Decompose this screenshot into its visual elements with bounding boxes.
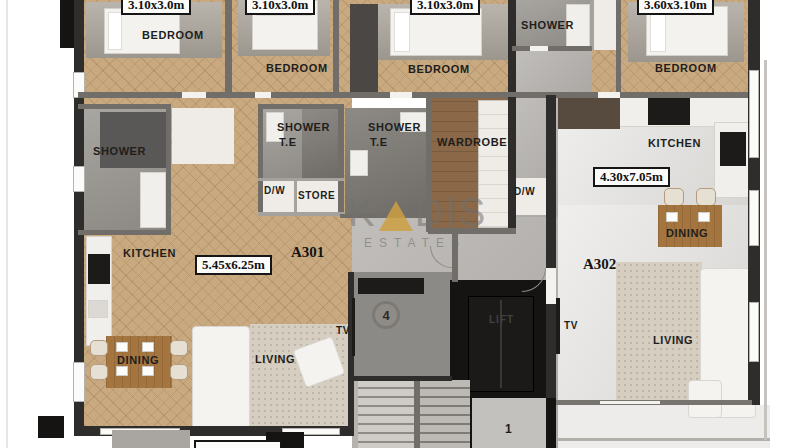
watermark-letters-dis: DIS <box>415 192 488 232</box>
wall-te1-left <box>258 104 263 214</box>
wall-store-bottom <box>258 212 344 216</box>
plate <box>698 212 710 222</box>
dining-chair <box>664 188 684 206</box>
tv-panel-a302 <box>556 298 560 354</box>
wall-store-dw <box>294 180 297 212</box>
room-label-shower-te-2: SHOWER <box>368 121 421 133</box>
window-right-2 <box>749 190 759 246</box>
room-label-bedroom-2: BEDROOM <box>266 62 328 74</box>
unit-label-a301: A301 <box>291 244 324 261</box>
sliding-door-a302 <box>600 401 660 404</box>
dimension-label-bedroom-4: 3.60x3.10m <box>637 0 714 15</box>
floor-plan: 4 LIFT 1 <box>0 0 796 448</box>
dining-chair <box>170 364 188 380</box>
pillow-3 <box>394 12 410 52</box>
balcony-rail <box>558 438 770 441</box>
room-label-living-a301: LIVING <box>255 353 295 365</box>
dining-chair <box>696 188 716 206</box>
tv-console <box>358 278 424 294</box>
wall-store-top <box>258 178 344 181</box>
room-label-bedroom-4: BEDROOM <box>655 62 717 74</box>
wall-shower-a302-bottom <box>512 46 592 51</box>
a302-closet <box>592 0 618 50</box>
wall-bed2-bed3 <box>333 0 339 97</box>
dining-chair <box>90 340 108 356</box>
room-label-wardrobe: WARDROBE <box>437 136 507 148</box>
dimension-label-bedroom-3: 3.10x3.0m <box>410 0 480 15</box>
label-tv-a302: TV <box>564 320 578 331</box>
corridor-top-floor <box>512 50 592 97</box>
kitchen-a301-stove <box>88 254 110 284</box>
wall-te1-top <box>258 104 344 109</box>
plate <box>142 342 154 352</box>
wall-te1-te2 <box>338 104 344 216</box>
pillow-1 <box>108 12 122 50</box>
label-tv-a301: TV <box>336 325 350 336</box>
door-gap-bedroom-1 <box>182 92 206 98</box>
dimension-label-living-a302: 4.30x7.05m <box>593 167 670 187</box>
door-gap-bedroom-2 <box>255 92 271 98</box>
watermark-letter-k: K <box>348 192 377 232</box>
wall-shower-a301-top <box>78 104 171 109</box>
bedroom-3-wardrobe-unit <box>350 4 378 92</box>
balcony-edge-right <box>764 60 767 440</box>
door-gap-bedroom-3 <box>390 92 412 98</box>
bottom-ledge <box>112 430 190 448</box>
tv-panel-a301 <box>352 298 355 356</box>
label-dw-1: D/W <box>264 185 285 196</box>
landing-number: 1 <box>505 422 512 436</box>
wall-bed1-bed2 <box>225 0 232 97</box>
door-gap-shower-a302 <box>530 46 548 51</box>
window-left-2 <box>73 166 85 192</box>
dimension-label-bedroom-1: 3.10x3.0m <box>121 0 191 15</box>
sofa-a302-chaise <box>688 380 722 418</box>
watermark-letter-a-triangle <box>379 201 413 231</box>
pillow-4 <box>650 10 666 52</box>
plate <box>116 366 128 376</box>
room-label-dining-a302: DINING <box>666 227 708 239</box>
room-label-te-1: T.E <box>279 136 297 148</box>
room-label-shower-te-1: SHOWER <box>277 121 330 133</box>
wall-shower-closet <box>590 0 594 50</box>
kitchen-a302-cabinet <box>558 95 620 129</box>
room-label-kitchen-a301: KITCHEN <box>123 247 176 259</box>
shower-te-1-dark-panel <box>302 108 338 180</box>
wall-shower-a301-bottom <box>78 230 171 235</box>
window-right-1 <box>749 70 759 158</box>
stair-core-number: 4 <box>382 308 389 323</box>
stairs-flight-1 <box>358 380 414 448</box>
plate <box>666 212 678 222</box>
room-label-living-a302: LIVING <box>653 334 693 346</box>
toilet-te-2 <box>350 150 368 176</box>
room-label-shower-a302: SHOWER <box>521 19 574 31</box>
plate <box>116 342 128 352</box>
wall-closet-bed4 <box>616 0 621 97</box>
plate <box>142 366 154 376</box>
window-right-3 <box>749 302 759 362</box>
window-left-3 <box>73 362 85 402</box>
label-dw-2: D/W <box>514 186 535 197</box>
watermark-subtitle: ESTATES <box>364 236 466 250</box>
room-label-store: STORE <box>298 190 335 201</box>
wall-stairs-top <box>352 376 452 381</box>
page-edge-line <box>6 0 8 448</box>
shower-a301-vanity <box>140 172 166 228</box>
lift-label: LIFT <box>489 314 514 325</box>
room-label-kitchen-a302: KITCHEN <box>648 137 701 149</box>
room-label-te-2: T.E <box>370 136 388 148</box>
room-label-bedroom-1: BEDROOM <box>142 29 204 41</box>
door-gap-bedroom-4 <box>598 92 620 98</box>
kitchen-a301-counter <box>86 236 112 346</box>
a302-entry-floor <box>592 50 618 97</box>
dimension-label-cutoff <box>194 440 282 448</box>
watermark-brand: K DIS <box>348 192 487 232</box>
stair-core-number-badge: 4 <box>372 301 400 329</box>
wall-corner-bl <box>38 416 64 438</box>
stairs-flight-2 <box>420 380 470 448</box>
room-label-shower-a301: SHOWER <box>93 145 146 157</box>
room-label-dining-a301: DINING <box>117 354 159 366</box>
wall-wardrobe-right <box>508 97 516 232</box>
kitchen-a301-sink <box>88 300 108 318</box>
unit-label-a302: A302 <box>583 256 616 273</box>
kitchen-a302-oven <box>720 132 746 166</box>
room-label-bedroom-3: BEDROOM <box>408 63 470 75</box>
kitchen-a302-cooktop <box>648 97 690 125</box>
wall-landing-right <box>546 398 556 448</box>
dining-chair <box>90 364 108 380</box>
rug-a302 <box>616 262 702 400</box>
wall-shower-a301-right <box>166 108 171 235</box>
dimension-label-living-a301: 5.45x6.25m <box>195 255 272 275</box>
dimension-label-bedroom-2: 3.10x3.0m <box>245 0 315 15</box>
door-gap-a302-entry <box>546 268 556 304</box>
hall-closet <box>172 108 234 164</box>
shower-enclosure-a301 <box>100 112 166 168</box>
wall-bedrooms-bottom <box>78 92 752 98</box>
sofa-a301 <box>192 326 250 430</box>
dining-chair <box>170 340 188 356</box>
